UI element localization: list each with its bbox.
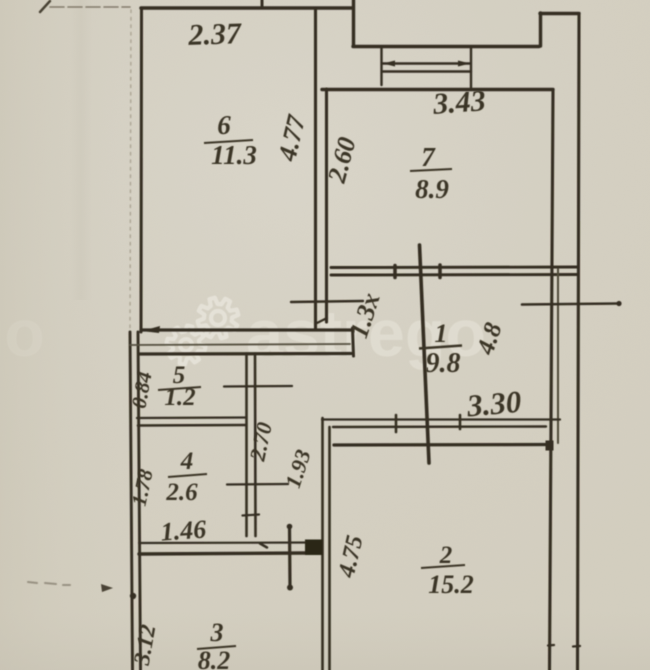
svg-text:3: 3 xyxy=(210,618,224,647)
svg-text:11.3: 11.3 xyxy=(211,140,257,170)
svg-text:2.6: 2.6 xyxy=(165,479,198,506)
svg-text:1.2: 1.2 xyxy=(164,384,195,411)
svg-text:8.2: 8.2 xyxy=(198,646,231,670)
svg-text:15.2: 15.2 xyxy=(428,570,474,599)
svg-text:9.8: 9.8 xyxy=(426,348,461,379)
svg-text:7: 7 xyxy=(421,142,436,172)
svg-text:1: 1 xyxy=(435,319,448,348)
svg-text:2: 2 xyxy=(439,542,453,569)
svg-text:8.9: 8.9 xyxy=(415,174,449,204)
svg-text:3.43: 3.43 xyxy=(431,84,487,121)
svg-text:3.30: 3.30 xyxy=(465,384,523,424)
svg-text:1.46: 1.46 xyxy=(160,514,207,546)
svg-text:2.37: 2.37 xyxy=(187,17,243,52)
svg-text:4: 4 xyxy=(180,448,194,475)
svg-text:6: 6 xyxy=(217,110,231,140)
svg-text:go: go xyxy=(0,296,45,370)
